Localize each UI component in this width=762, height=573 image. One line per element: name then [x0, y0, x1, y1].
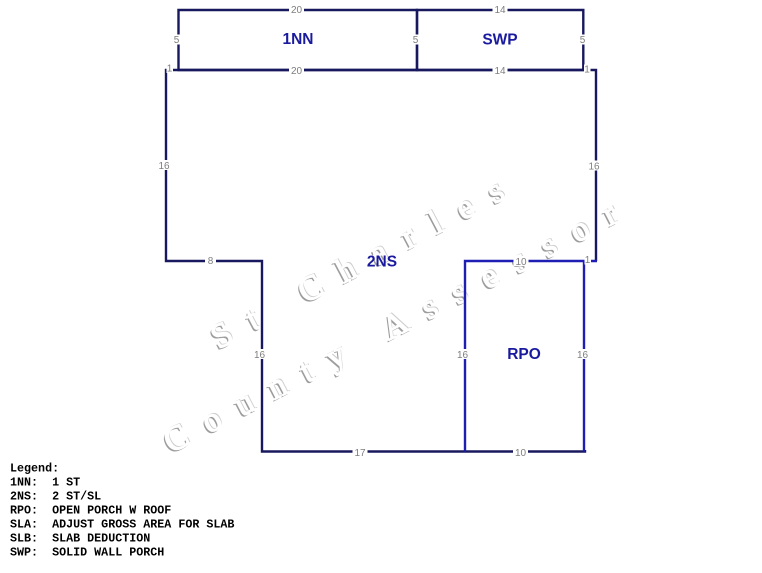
svg-text:14: 14 — [494, 66, 506, 77]
svg-text:1: 1 — [584, 65, 590, 76]
svg-text:1: 1 — [585, 255, 591, 266]
svg-text:20: 20 — [291, 66, 303, 77]
svg-text:16: 16 — [158, 161, 170, 172]
svg-text:20: 20 — [291, 5, 303, 16]
svg-text:16: 16 — [254, 350, 266, 361]
svg-text:1NN: 1 ST: 1NN: 1 ST — [10, 476, 80, 490]
svg-text:Legend:: Legend: — [10, 462, 59, 476]
svg-text:16: 16 — [457, 350, 469, 361]
svg-text:5: 5 — [174, 35, 180, 46]
svg-text:5: 5 — [580, 35, 586, 46]
svg-text:1: 1 — [167, 64, 173, 75]
svg-text:2NS: 2NS — [367, 254, 397, 271]
svg-text:10: 10 — [515, 448, 527, 459]
svg-text:16: 16 — [588, 161, 600, 172]
svg-text:RPO: OPEN PORCH W ROOF: RPO: OPEN PORCH W ROOF — [10, 504, 171, 518]
svg-text:10: 10 — [515, 257, 527, 268]
svg-text:SLA: ADJUST GROSS AREA FOR SL: SLA: ADJUST GROSS AREA FOR SLAB — [10, 518, 234, 532]
svg-text:RPO: RPO — [507, 346, 541, 363]
svg-text:8: 8 — [208, 256, 214, 267]
svg-text:17: 17 — [354, 448, 366, 459]
svg-text:SWP: SOLID WALL PORCH: SWP: SOLID WALL PORCH — [10, 546, 164, 560]
svg-text:5: 5 — [413, 35, 419, 46]
svg-text:SLB: SLAB DEDUCTION: SLB: SLAB DEDUCTION — [10, 532, 150, 546]
svg-text:14: 14 — [494, 5, 506, 16]
svg-text:2NS: 2 ST/SL: 2NS: 2 ST/SL — [10, 490, 101, 504]
svg-text:SWP: SWP — [482, 32, 517, 49]
svg-text:16: 16 — [577, 350, 589, 361]
svg-text:1NN: 1NN — [282, 31, 313, 48]
